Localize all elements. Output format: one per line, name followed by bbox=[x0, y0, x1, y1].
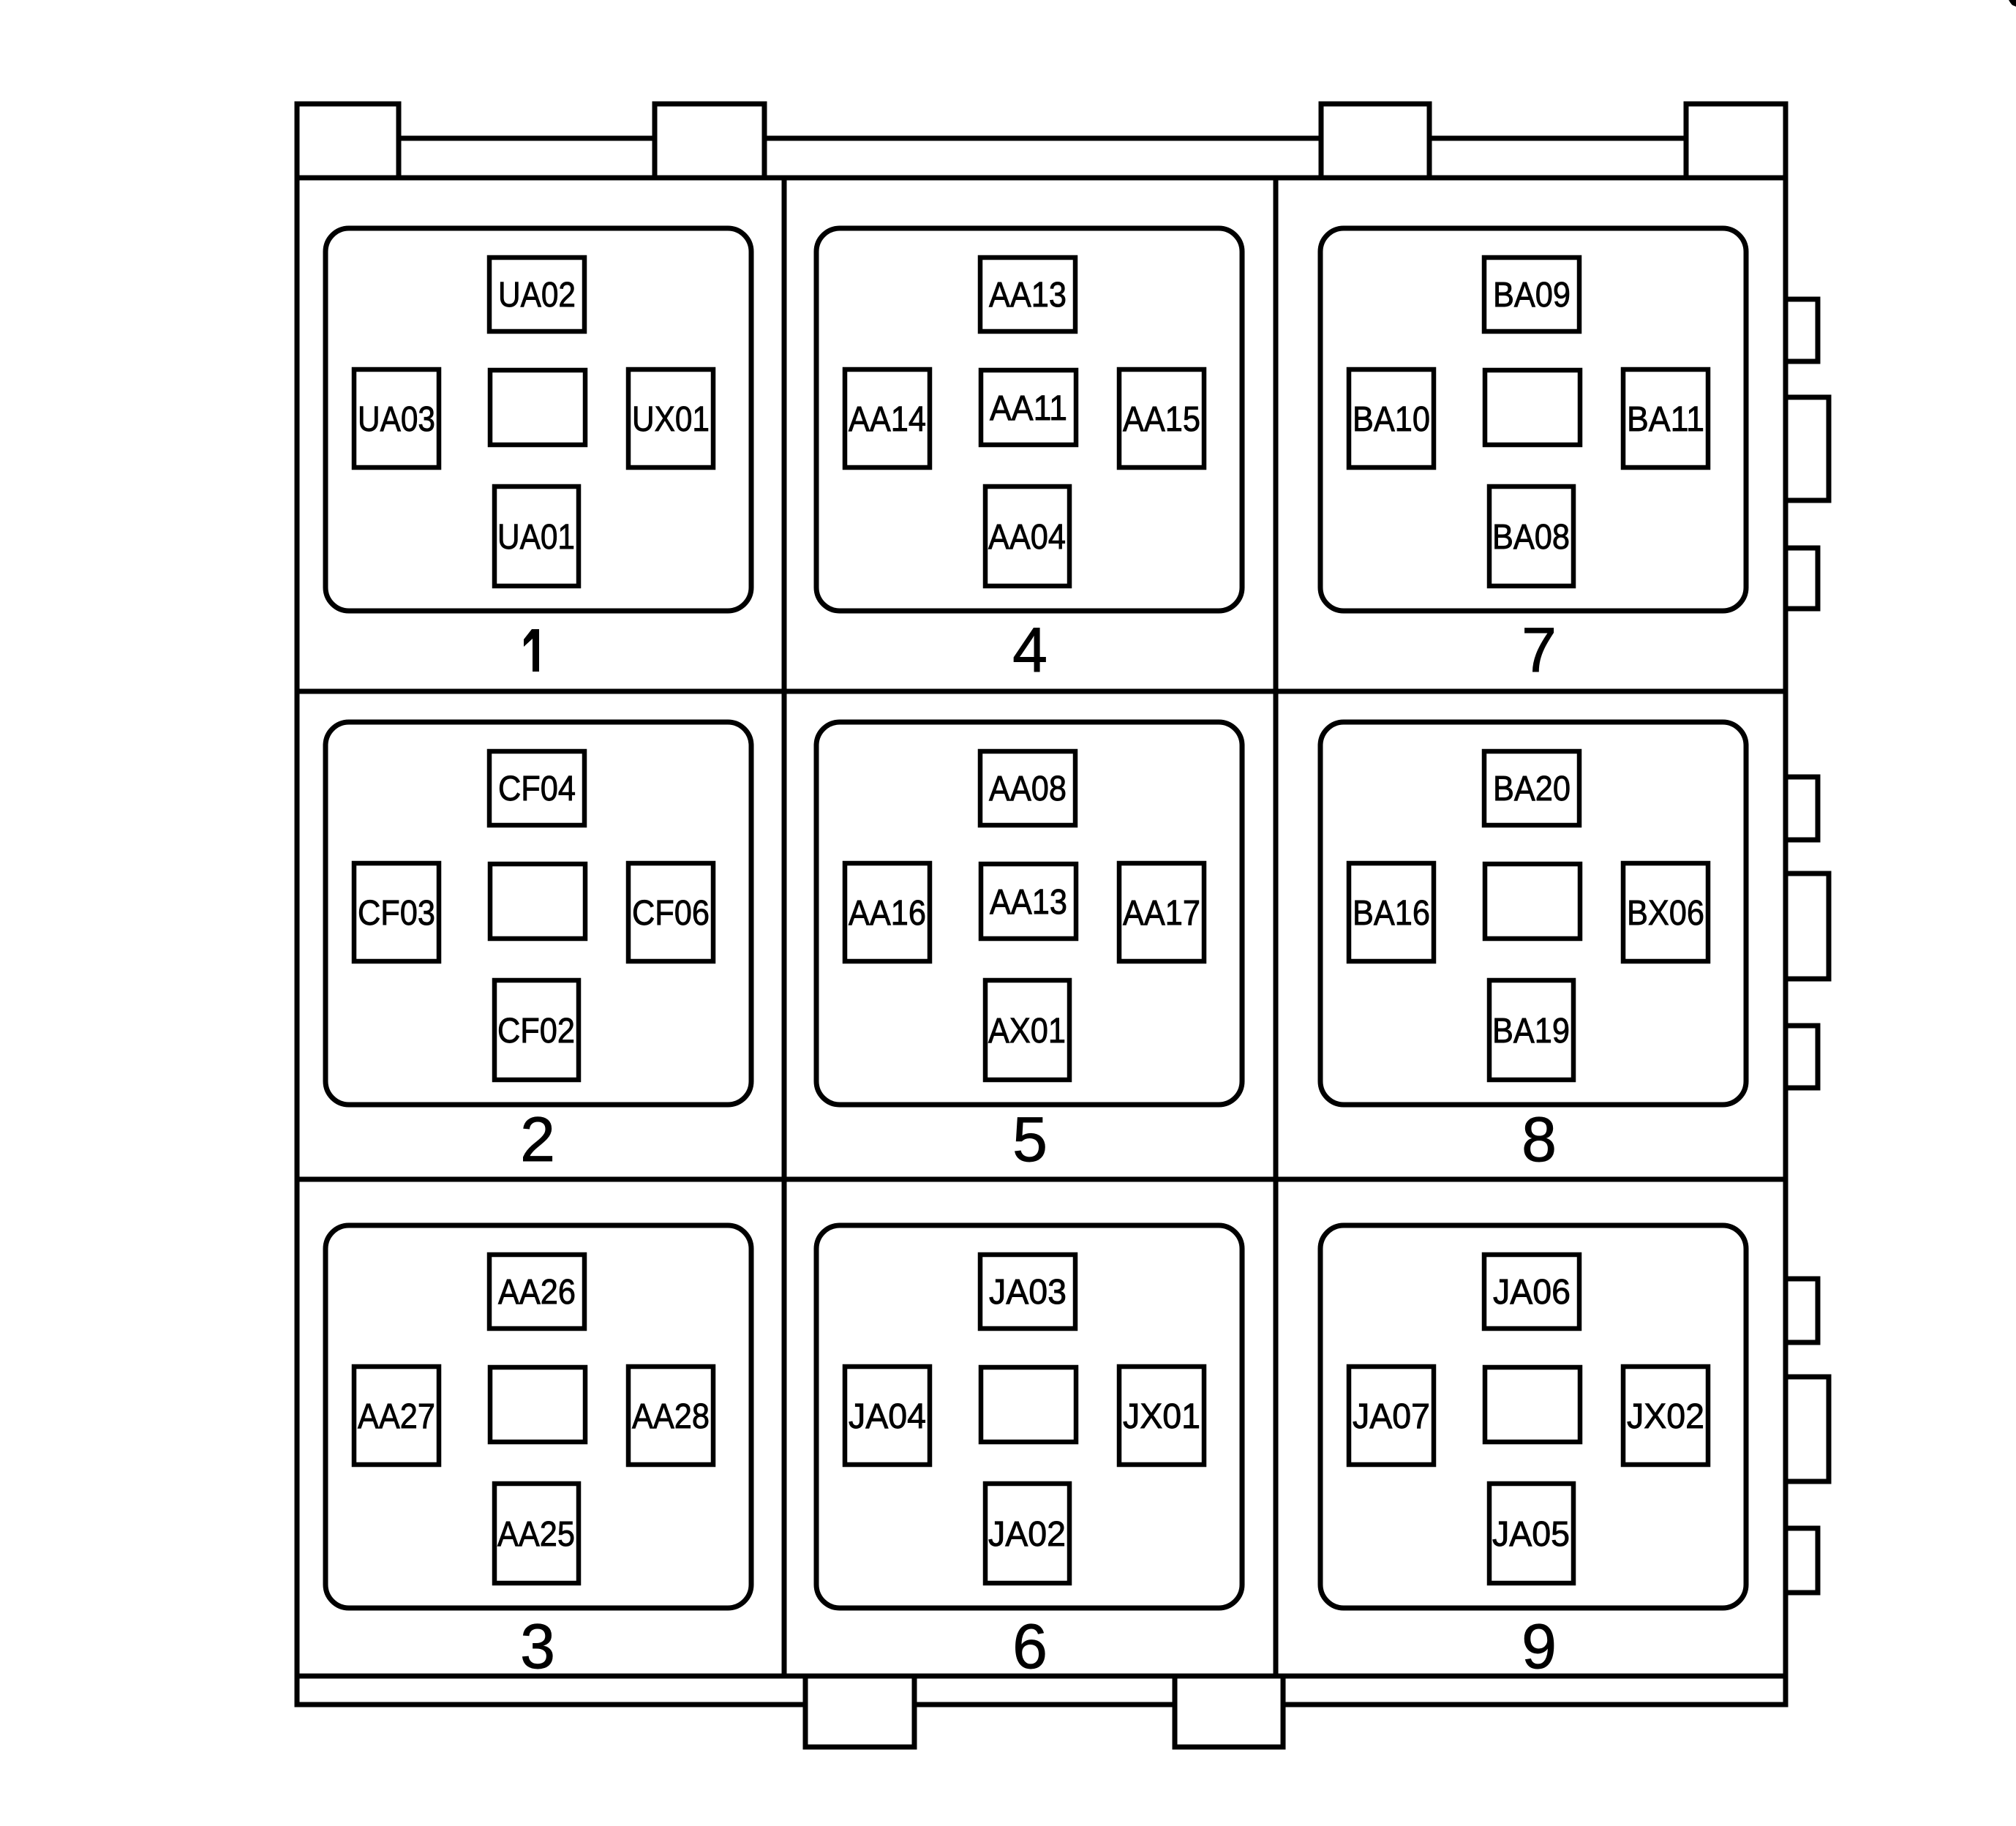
svg-text:JA07: JA07 bbox=[1353, 1397, 1430, 1436]
svg-text:UA03: UA03 bbox=[358, 399, 435, 439]
svg-text:BA19: BA19 bbox=[1492, 1011, 1570, 1051]
svg-text:AA11: AA11 bbox=[990, 388, 1067, 428]
svg-text:5: 5 bbox=[1012, 1105, 1048, 1175]
svg-text:AA13: AA13 bbox=[990, 882, 1067, 922]
svg-text:CF06: CF06 bbox=[632, 893, 710, 933]
svg-text:AA16: AA16 bbox=[849, 893, 926, 933]
svg-text:JX01: JX01 bbox=[1123, 1397, 1200, 1436]
svg-text:CF04: CF04 bbox=[498, 769, 576, 808]
svg-text:UX01: UX01 bbox=[632, 399, 710, 439]
svg-text:7: 7 bbox=[1522, 615, 1557, 685]
svg-text:JA06: JA06 bbox=[1493, 1272, 1571, 1312]
svg-text:4: 4 bbox=[1012, 615, 1048, 685]
svg-text:UA01: UA01 bbox=[497, 517, 575, 557]
svg-text:JX02: JX02 bbox=[1627, 1397, 1704, 1436]
svg-text:CF03: CF03 bbox=[358, 893, 435, 933]
svg-text:UA02: UA02 bbox=[498, 275, 576, 315]
svg-text:JA04: JA04 bbox=[849, 1397, 926, 1436]
svg-text:9: 9 bbox=[1522, 1612, 1557, 1682]
svg-text:JA05: JA05 bbox=[1492, 1514, 1570, 1554]
svg-text:AA26: AA26 bbox=[498, 1272, 576, 1312]
svg-text:AA25: AA25 bbox=[497, 1514, 575, 1554]
svg-text:CF02: CF02 bbox=[497, 1011, 575, 1051]
svg-text:BX06: BX06 bbox=[1627, 893, 1704, 933]
svg-text:BA09: BA09 bbox=[1493, 275, 1571, 315]
svg-text:AA08: AA08 bbox=[989, 769, 1067, 808]
svg-text:BA10: BA10 bbox=[1353, 399, 1430, 439]
svg-text:AX01: AX01 bbox=[988, 1011, 1066, 1051]
svg-text:AA14: AA14 bbox=[849, 399, 926, 439]
svg-text:AA17: AA17 bbox=[1123, 893, 1200, 933]
svg-text:AA15: AA15 bbox=[1123, 399, 1200, 439]
svg-text:AA28: AA28 bbox=[632, 1397, 710, 1436]
svg-text:BA08: BA08 bbox=[1492, 517, 1570, 557]
svg-text:JA03: JA03 bbox=[989, 1272, 1067, 1312]
svg-text:AA13: AA13 bbox=[989, 275, 1067, 315]
svg-text:BA16: BA16 bbox=[1353, 893, 1430, 933]
svg-text:8: 8 bbox=[1522, 1105, 1557, 1175]
svg-text:6: 6 bbox=[1012, 1612, 1048, 1682]
svg-text:AA04: AA04 bbox=[988, 517, 1066, 557]
svg-text:BA20: BA20 bbox=[1493, 769, 1571, 808]
svg-text:AA27: AA27 bbox=[358, 1397, 435, 1436]
svg-text:JA02: JA02 bbox=[988, 1514, 1066, 1554]
svg-text:2: 2 bbox=[520, 1105, 555, 1175]
svg-text:3: 3 bbox=[520, 1612, 555, 1682]
svg-text:BA11: BA11 bbox=[1627, 399, 1704, 439]
